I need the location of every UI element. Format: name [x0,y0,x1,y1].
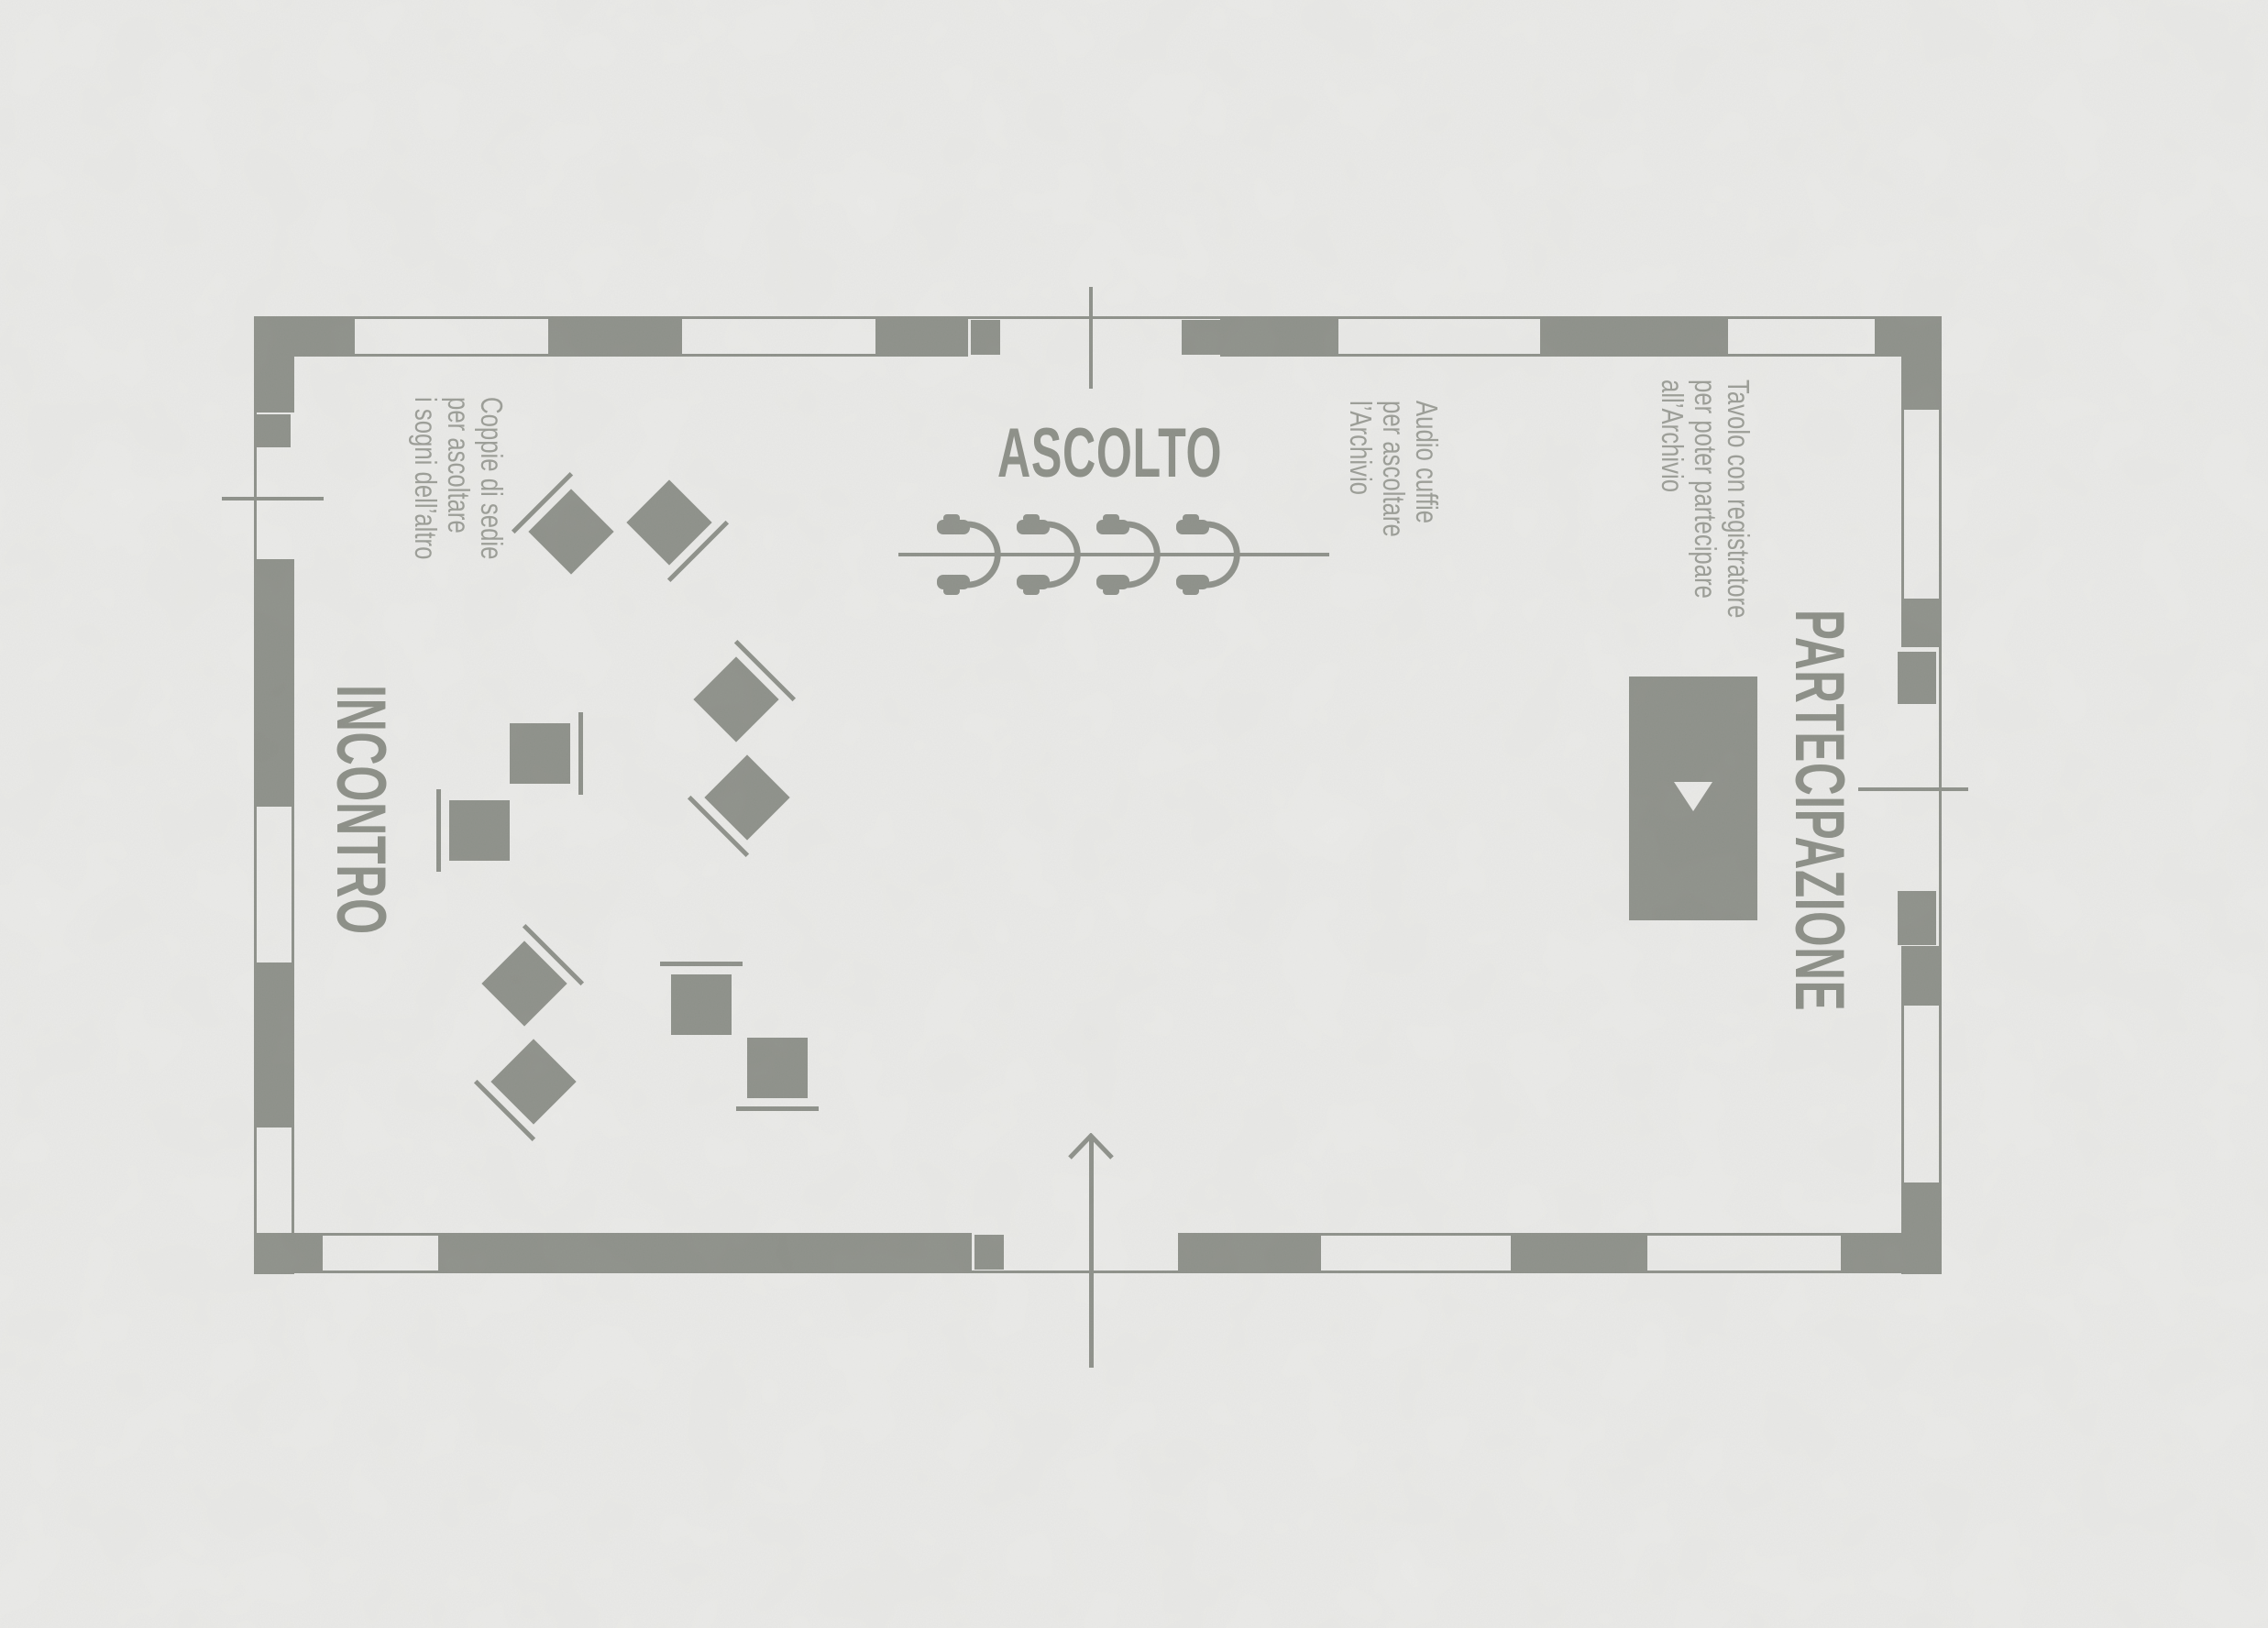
wall-segment [875,319,965,354]
headphone-icon [1015,513,1086,596]
wall-right-opening-line [1939,647,1942,946]
wall-segment [1223,319,1338,354]
wall-left-lower-band [254,559,294,1274]
zone-label-incontro: INCONTRO [324,685,397,1063]
chair-backrest [578,712,583,795]
wall-bottom-left-band [254,1233,972,1273]
wall-top-opening-line [968,316,1220,319]
door-tick-right [1858,787,1968,791]
note-audio-line2: per ascoltare [1377,401,1410,537]
wall-segment [1540,319,1728,354]
wall-segment [1904,599,1939,644]
zone-label-partecipazione-text: PARTECIPAZIONE [1782,610,1855,1011]
note-coppie: Coppie di sedie per ascoltare i sogni de… [409,397,508,606]
wall-segment [257,1233,292,1271]
door-leaf [971,320,1000,355]
chair-seat [449,800,510,861]
zone-label-incontro-text: INCONTRO [324,685,397,935]
zone-label-ascolto: ASCOLTO [997,417,1338,490]
note-audio: Audio cuffie per ascoltare l’Archivio [1344,401,1443,576]
wall-segment [1511,1236,1647,1270]
door-leaf [1898,891,1936,945]
wall-bottom-right-band [1178,1233,1942,1273]
wall-top-right-band [1220,316,1942,357]
entrance-arrow-shaft [1089,1137,1094,1368]
axis-tick-top [1089,287,1093,389]
chair-backrest [660,962,743,966]
wall-segment [1181,1236,1321,1270]
chair-icon [464,923,586,1045]
wall-bottom-opening-line [972,1270,1178,1273]
zone-label-ascolto-text: ASCOLTO [997,417,1222,490]
wall-top-left-band [254,316,968,357]
chair-icon [658,962,744,1048]
chair-backrest [436,789,441,872]
wall-right-lower-band [1901,946,1942,1274]
headphone-icon [1095,513,1166,596]
door-leaf [1898,652,1936,704]
headphone-icon [935,513,1007,596]
chair-icon [473,1021,595,1143]
wall-right-upper-band [1901,316,1942,647]
wall-segment [257,562,292,807]
chair-seat [671,974,732,1035]
note-tavolo-line3: all’Archivio [1656,379,1689,618]
chair-icon [609,462,731,584]
chair-seat [747,1038,808,1098]
entrance-arrow-icon [1067,1133,1115,1160]
wall-segment [257,319,292,410]
chair-icon [497,710,583,797]
chair-icon [734,1025,820,1111]
zone-label-partecipazione: PARTECIPAZIONE [1782,610,1855,1227]
chair-backrest [736,1106,819,1111]
note-audio-line3: l’Archivio [1344,401,1377,537]
note-tavolo-line1: Tavolo con registratore [1722,379,1755,618]
chair-icon [436,787,523,874]
wall-segment [1904,949,1939,1006]
note-tavolo: Tavolo con registratore per poter partec… [1656,379,1755,686]
triangle-icon [1674,782,1712,811]
chair-icon [676,639,798,761]
wall-segment [438,1236,969,1270]
note-coppie-line3: i sogni dell’altro [409,397,442,559]
door-leaf [256,414,291,447]
wall-left-upper-band [254,316,294,412]
wall-segment [548,319,682,354]
chair-icon [511,471,633,593]
chair-seat [510,723,570,784]
door-tick-left [222,497,324,500]
note-coppie-line1: Coppie di sedie [475,397,508,559]
door-leaf [974,1235,1004,1270]
headphone-icon [1174,513,1246,596]
wall-segment [1904,319,1939,410]
floor-plan: ASCOLTO Audio cuffie per ascoltare l’Arc… [0,0,2268,1628]
note-tavolo-line2: per poter partecipare [1689,379,1722,618]
wall-segment [1904,1182,1939,1271]
chair-icon [687,737,809,859]
wall-segment [257,962,292,1127]
note-coppie-line2: per ascoltare [442,397,475,559]
note-audio-line1: Audio cuffie [1410,401,1443,537]
recorder-table [1629,676,1757,920]
door-leaf [1182,320,1220,355]
